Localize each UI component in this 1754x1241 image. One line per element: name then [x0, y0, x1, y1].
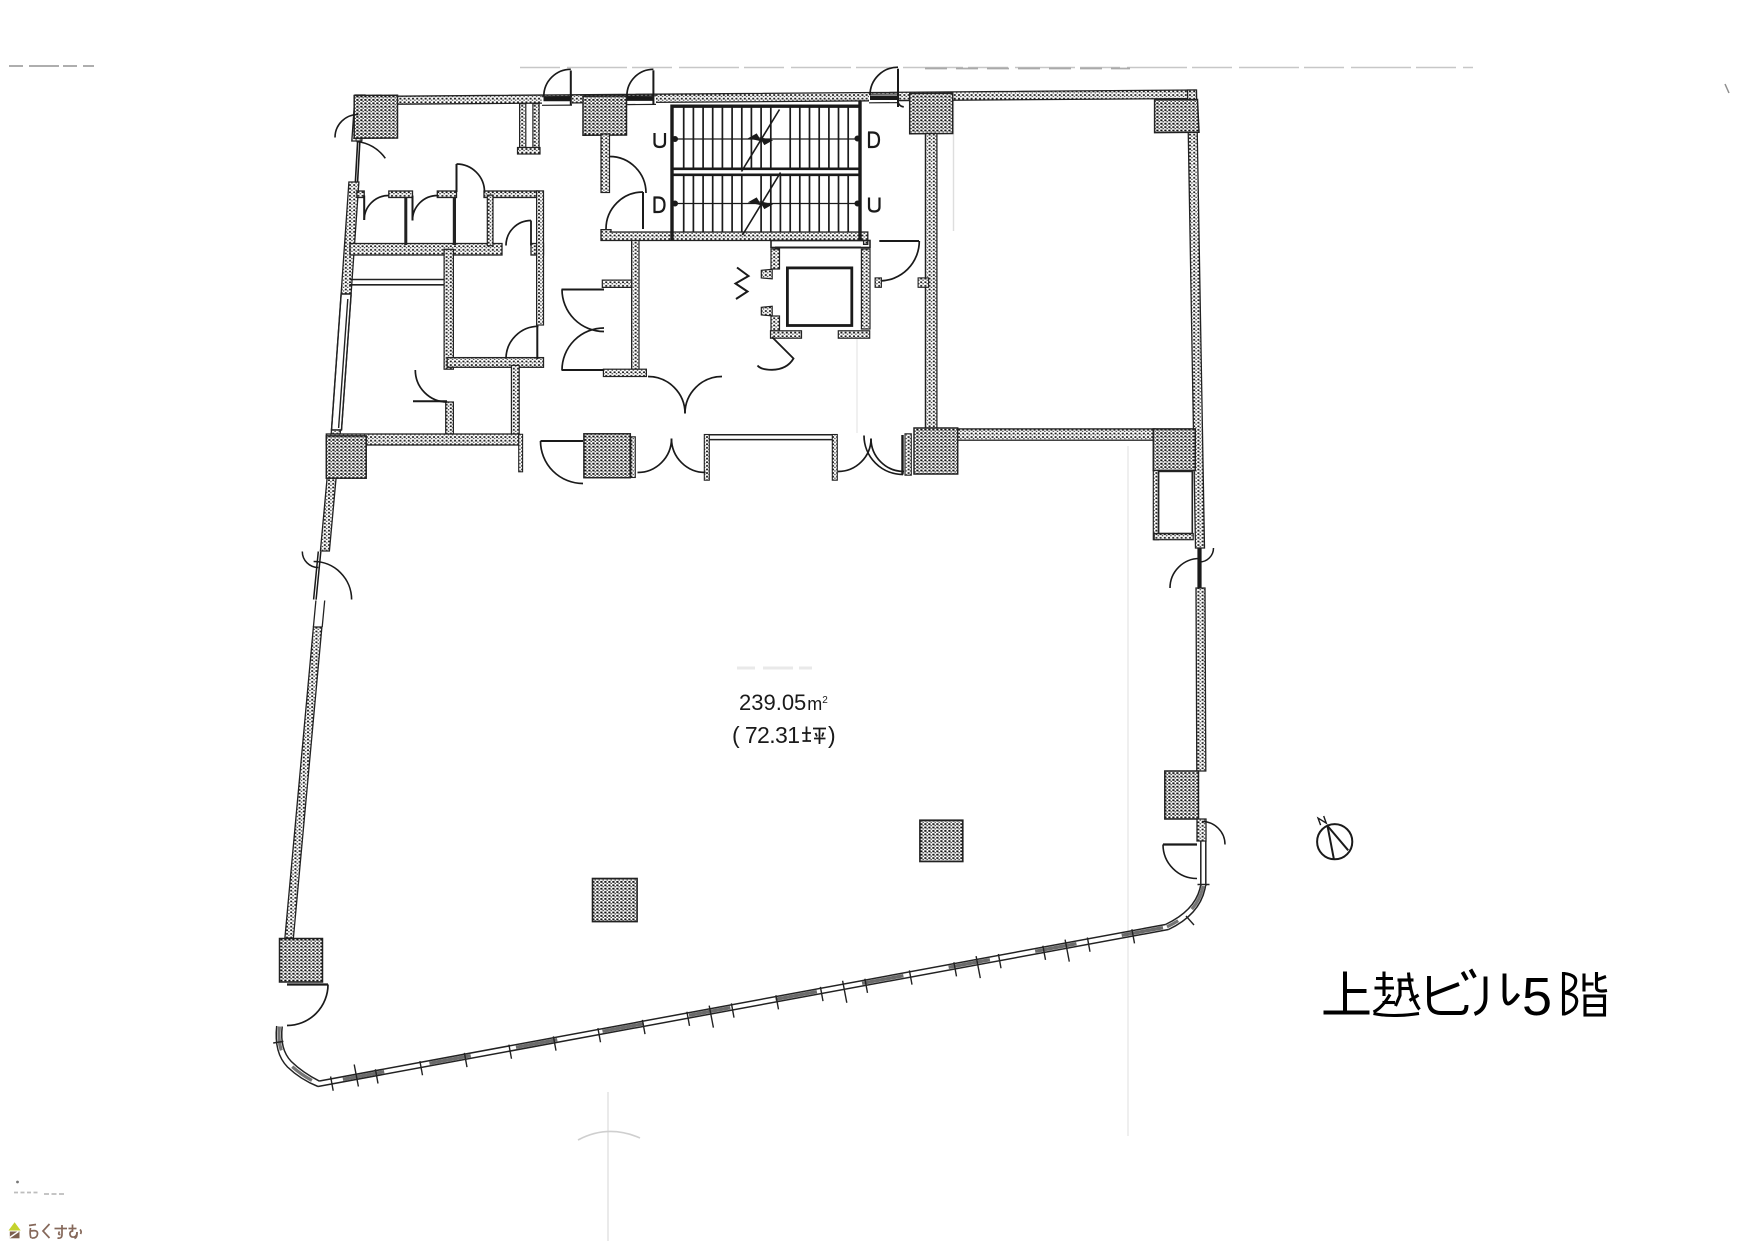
svg-text:239.05m2: 239.05m2 [739, 690, 828, 715]
svg-text:): ) [828, 722, 836, 748]
svg-text:( 72.31: ( 72.31 [732, 722, 799, 748]
svg-text:5: 5 [1522, 967, 1552, 1027]
